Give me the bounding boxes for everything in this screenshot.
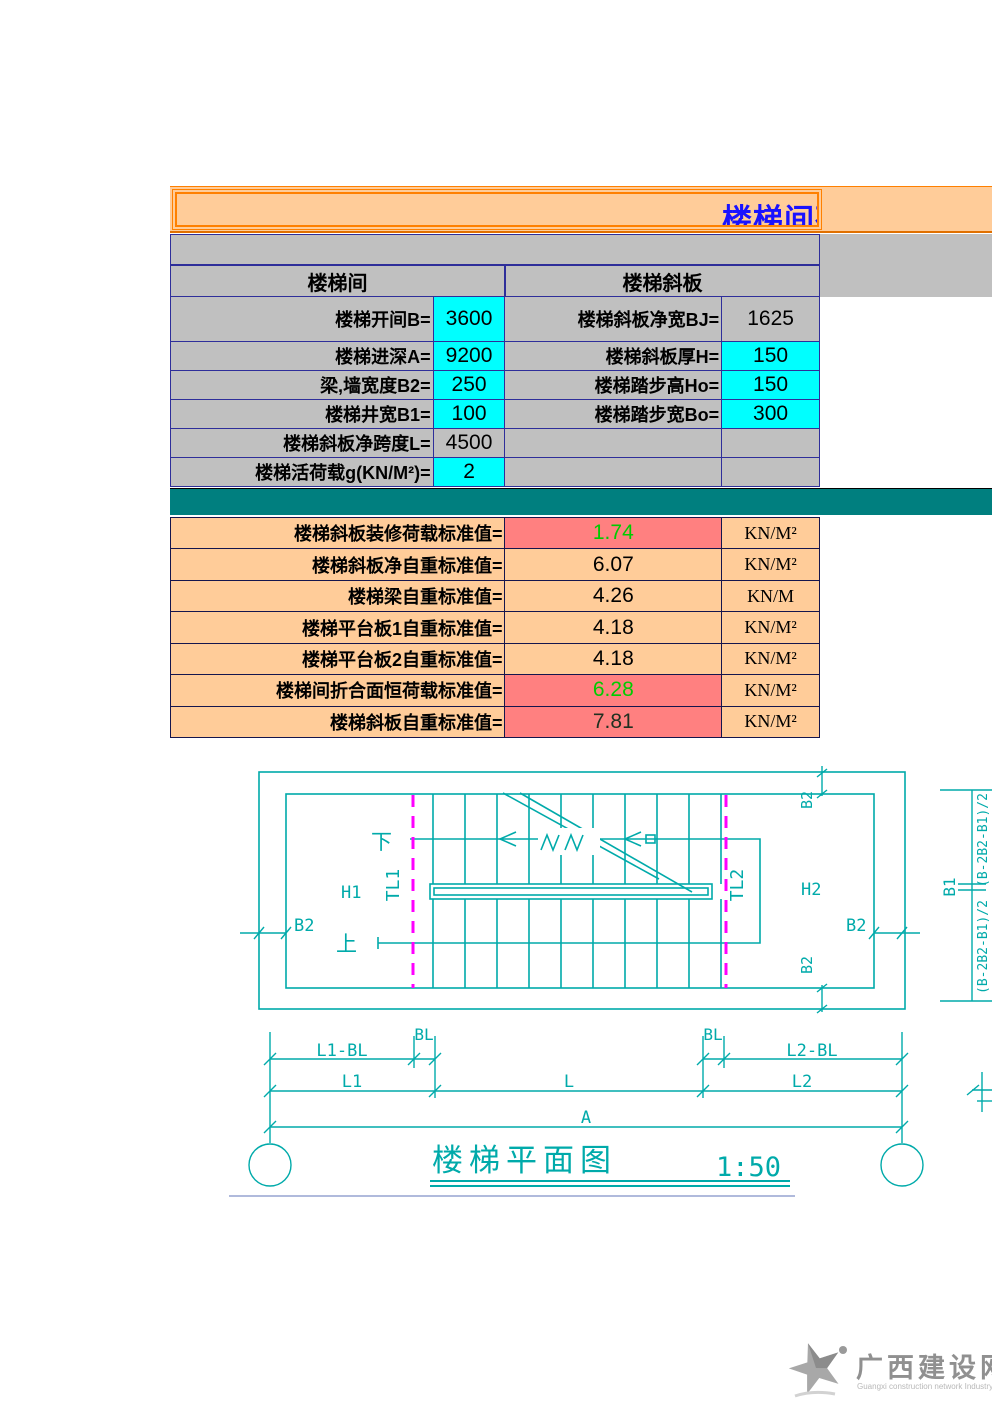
calc-cell: 1625 xyxy=(722,297,820,342)
side-formula-lower: (B-2B2-B1)/2 xyxy=(976,900,991,994)
drawing-title: 楼梯平面图 xyxy=(432,1143,617,1179)
calc-sheet-page: 楼梯间荷 楼梯间 楼梯斜板 楼梯开间B= 3600 楼梯斜板净宽BJ= 1625… xyxy=(0,0,992,1403)
l1-dim-label: L1 xyxy=(342,1072,362,1092)
l-dim-label: L xyxy=(564,1072,574,1092)
table-row: 楼梯斜板自重标准值= 7.81 KN/M² xyxy=(171,707,820,738)
a-dim-label: A xyxy=(581,1108,591,1128)
l1-bl-dim-label: L1-BL xyxy=(316,1041,367,1061)
stair-well-bar xyxy=(430,884,712,899)
plan-labels: 下 上 H1 H2 B2 B2 B2 B2 TL1 TL2 B1 (B-2B2-… xyxy=(294,791,991,1183)
table-row: 楼梯进深A= 9200 楼梯斜板厚H= 150 xyxy=(171,342,820,371)
input-cell[interactable]: 300 xyxy=(722,400,820,429)
param-label: 楼梯踏步高Ho= xyxy=(595,372,722,398)
b2-label-right: B2 xyxy=(846,916,866,936)
banner-title-box: 楼梯间荷 xyxy=(172,189,822,230)
result-unit: KN/M² xyxy=(722,707,820,738)
result-label: 楼梯梁自重标准值= xyxy=(171,581,505,612)
calc-cell: 4500 xyxy=(434,429,506,458)
input-cell[interactable]: 150 xyxy=(722,371,820,400)
result-value-highlight: 7.81 xyxy=(505,707,722,738)
result-label: 楼梯平台板2自重标准值= xyxy=(171,644,505,675)
axis-bubble xyxy=(881,1144,923,1186)
input-cell[interactable]: 3600 xyxy=(434,297,506,342)
inner-wall xyxy=(286,794,874,988)
site-logo-star-icon xyxy=(783,1334,853,1403)
table-row: 楼梯斜板净跨度L= 4500 xyxy=(171,429,820,458)
star-dot xyxy=(839,1346,847,1354)
b1-label: B1 xyxy=(940,877,959,896)
result-value: 4.18 xyxy=(505,644,722,675)
input-cell[interactable]: 100 xyxy=(434,400,506,429)
section-header-slab: 楼梯斜板 xyxy=(505,265,820,297)
axis-bubble xyxy=(249,1144,291,1186)
table-row: 楼梯间折合面恒荷载标准值= 6.28 KN/M² xyxy=(171,675,820,706)
result-value-highlight: 6.28 xyxy=(505,675,722,706)
table-row: 楼梯井宽B1= 100 楼梯踏步宽Bo= 300 xyxy=(171,400,820,429)
result-unit: KN/M² xyxy=(722,612,820,643)
input-cell[interactable]: 9200 xyxy=(434,342,506,371)
divider-band xyxy=(170,488,992,515)
section-header-row: 楼梯间 楼梯斜板 xyxy=(170,265,820,297)
table-row: 楼梯斜板净自重标准值= 6.07 KN/M² xyxy=(171,549,820,580)
site-name: 广西建设网 xyxy=(856,1346,992,1385)
up-label: 上 xyxy=(336,932,357,956)
param-label: 楼梯踏步宽Bo= xyxy=(595,401,722,427)
stair-beams xyxy=(413,795,726,988)
param-label: 楼梯活荷载g(KN/M²)= xyxy=(255,459,432,485)
param-label: 梁,墙宽度B2= xyxy=(320,372,433,398)
param-label: 楼梯斜板厚H= xyxy=(606,343,722,369)
result-unit: KN/M xyxy=(722,581,820,612)
input-cell[interactable]: 2 xyxy=(434,458,506,487)
input-cell[interactable]: 250 xyxy=(434,371,506,400)
h1-label: H1 xyxy=(341,883,361,903)
l2-dim-label: L2 xyxy=(792,1072,812,1092)
table-row: 梁,墙宽度B2= 250 楼梯踏步高Ho= 150 xyxy=(171,371,820,400)
table-row: 楼梯开间B= 3600 楼梯斜板净宽BJ= 1625 xyxy=(171,297,820,342)
tl1-label: TL1 xyxy=(383,869,404,902)
sheet-title: 楼梯间荷 xyxy=(722,195,819,227)
side-formula-upper: (B-2B2-B1)/2 xyxy=(976,793,991,887)
l2-bl-dim-label: L2-BL xyxy=(786,1041,837,1061)
blank-row xyxy=(170,234,820,265)
stair-plan-drawing: 下 上 H1 H2 B2 B2 B2 B2 TL1 TL2 B1 (B-2B2-… xyxy=(225,762,992,1240)
logo-squiggle xyxy=(795,1392,835,1396)
empty-cell xyxy=(722,458,820,487)
result-unit: KN/M² xyxy=(722,518,820,549)
bl-label-right: BL xyxy=(703,1025,722,1044)
banner-title-inner-border: 楼梯间荷 xyxy=(175,192,819,227)
result-label: 楼梯斜板装修荷载标准值= xyxy=(171,518,505,549)
result-label: 楼梯斜板净自重标准值= xyxy=(171,549,505,580)
result-unit: KN/M² xyxy=(722,644,820,675)
drawing-scale: 1:50 xyxy=(716,1152,781,1183)
b2-label-bottom: B2 xyxy=(798,956,816,974)
table-row: 楼梯斜板装修荷载标准值= 1.74 KN/M² xyxy=(171,518,820,549)
param-label: 楼梯斜板净宽BJ= xyxy=(578,306,722,332)
table-row: 楼梯活荷载g(KN/M²)= 2 xyxy=(171,458,820,487)
table-row: 楼梯平台板1自重标准值= 4.18 KN/M² xyxy=(171,612,820,643)
table-row: 楼梯平台板2自重标准值= 4.18 KN/M² xyxy=(171,644,820,675)
b2-label-left: B2 xyxy=(294,916,314,936)
table-row: 楼梯梁自重标准值= 4.26 KN/M xyxy=(171,581,820,612)
empty-cell xyxy=(722,429,820,458)
result-label: 楼梯斜板自重标准值= xyxy=(171,707,505,738)
sheet-banner: 楼梯间荷 xyxy=(170,186,992,233)
result-value-highlight: 1.74 xyxy=(505,518,722,549)
result-value: 4.26 xyxy=(505,581,722,612)
param-label: 楼梯井宽B1= xyxy=(325,401,433,427)
input-cell[interactable]: 150 xyxy=(722,342,820,371)
result-label: 楼梯平台板1自重标准值= xyxy=(171,612,505,643)
result-table: 楼梯斜板装修荷载标准值= 1.74 KN/M² 楼梯斜板净自重标准值= 6.07… xyxy=(170,517,820,738)
param-label: 楼梯进深A= xyxy=(335,343,433,369)
result-unit: KN/M² xyxy=(722,675,820,706)
param-label: 楼梯斜板净跨度L= xyxy=(283,430,433,456)
result-label: 楼梯间折合面恒荷载标准值= xyxy=(171,675,505,706)
site-tagline: Guangxi construction network Industry Ed… xyxy=(857,1382,992,1391)
title-underline xyxy=(430,1181,790,1186)
tl2-label: TL2 xyxy=(727,869,748,902)
section-header-staircase: 楼梯间 xyxy=(170,265,505,297)
result-value: 4.18 xyxy=(505,612,722,643)
b2-label-top: B2 xyxy=(798,791,816,809)
bl-label-left: BL xyxy=(414,1025,433,1044)
input-table: 楼梯开间B= 3600 楼梯斜板净宽BJ= 1625 楼梯进深A= 9200 楼… xyxy=(170,297,820,487)
result-value: 6.07 xyxy=(505,549,722,580)
down-label: 下 xyxy=(371,830,392,854)
h2-label: H2 xyxy=(801,880,821,900)
result-unit: KN/M² xyxy=(722,549,820,580)
star-shape xyxy=(783,1335,847,1397)
param-label: 楼梯开间B= xyxy=(335,306,433,332)
stair-well-bar-inner xyxy=(434,888,708,895)
